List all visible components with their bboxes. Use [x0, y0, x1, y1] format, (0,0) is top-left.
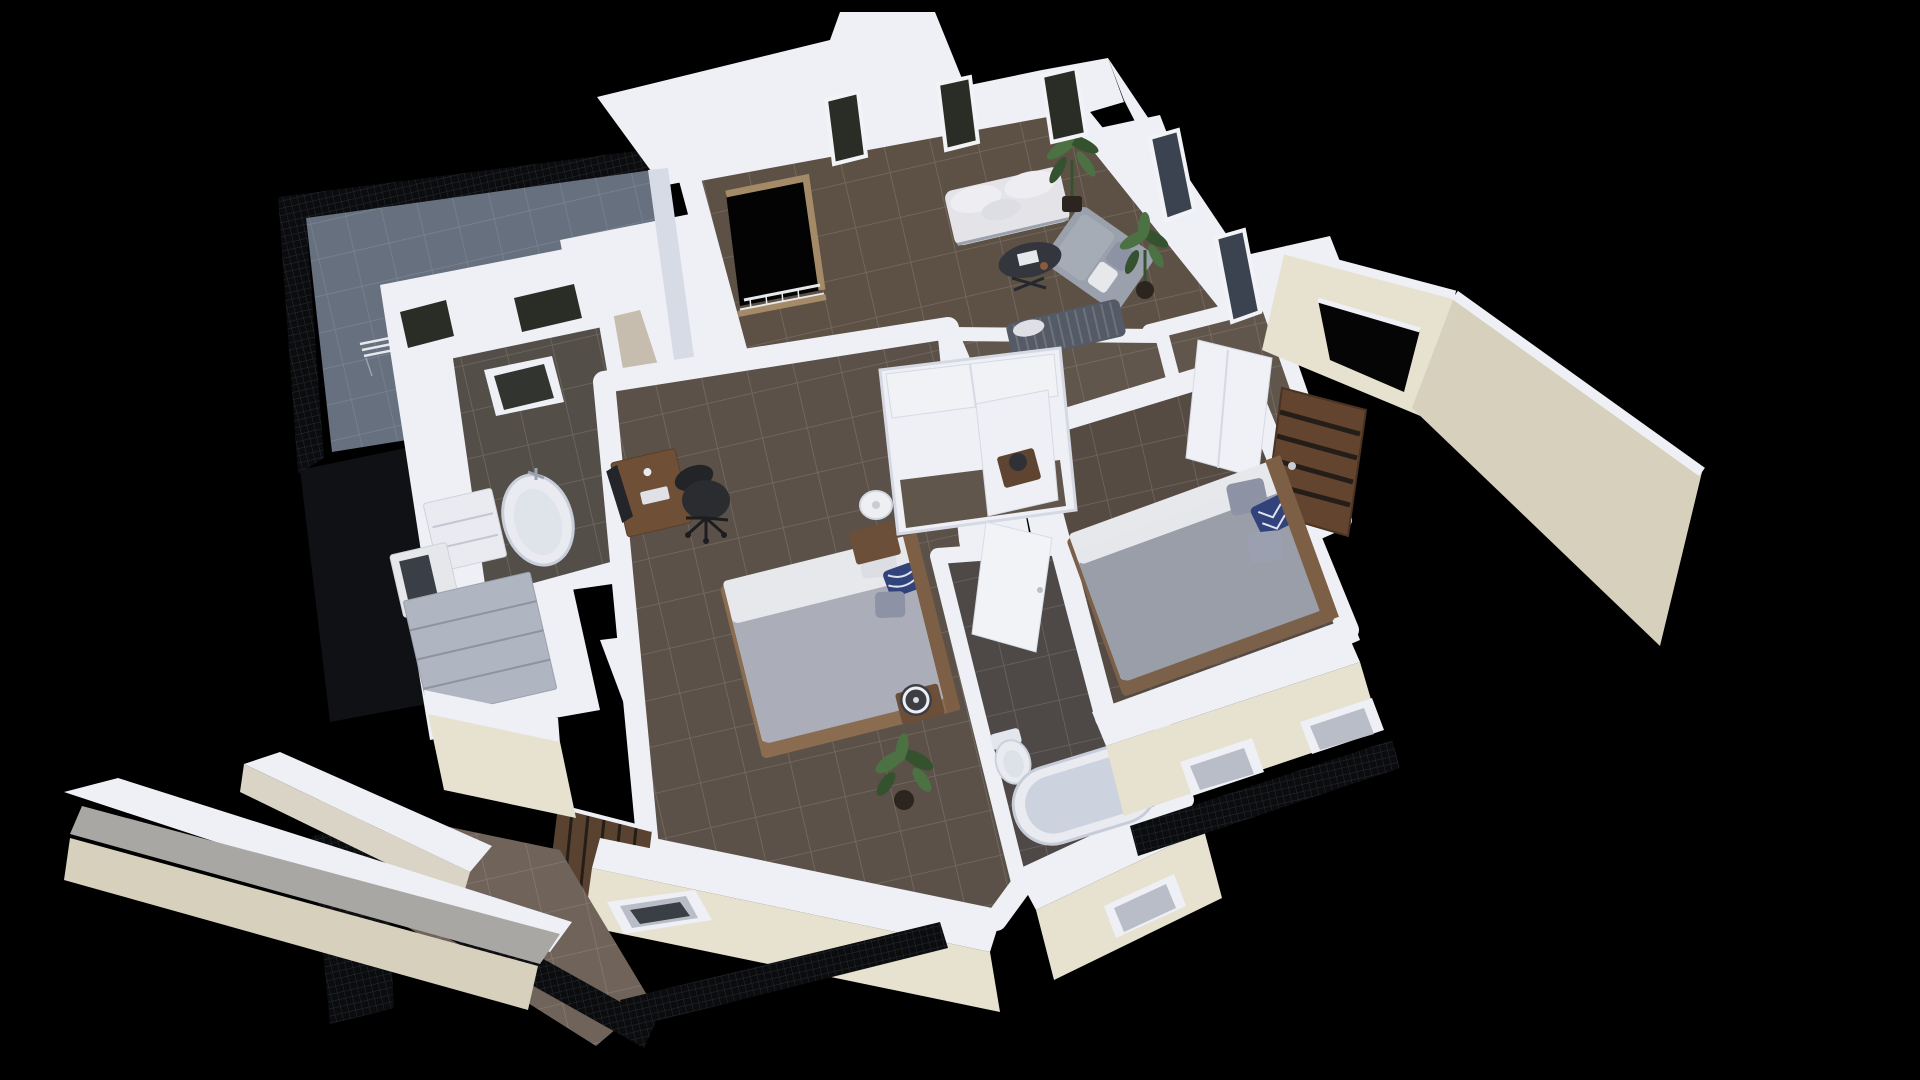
north-window	[1042, 68, 1086, 142]
plant-pot	[1062, 196, 1082, 212]
front-door-handle	[1288, 462, 1296, 470]
plant-pot	[894, 790, 914, 810]
render-viewport	[0, 0, 1920, 1080]
pillow-gray	[875, 591, 906, 618]
chair-wheel	[685, 532, 691, 538]
north-window	[826, 92, 866, 164]
pillow-gray-2	[1247, 530, 1284, 563]
lamp-finial	[872, 501, 880, 509]
lamp-finial	[913, 697, 919, 703]
plant-pot	[1136, 281, 1154, 299]
floorplan-3d-render	[0, 0, 1920, 1080]
table-lamp-top	[1009, 453, 1027, 471]
chair-seat	[682, 480, 730, 520]
sliding-closet-door	[1186, 340, 1272, 478]
north-window	[938, 77, 978, 150]
chair-wheel	[721, 532, 727, 538]
table-bowl	[1040, 262, 1048, 270]
door-knob	[1037, 587, 1043, 593]
chair-wheel	[703, 538, 709, 544]
